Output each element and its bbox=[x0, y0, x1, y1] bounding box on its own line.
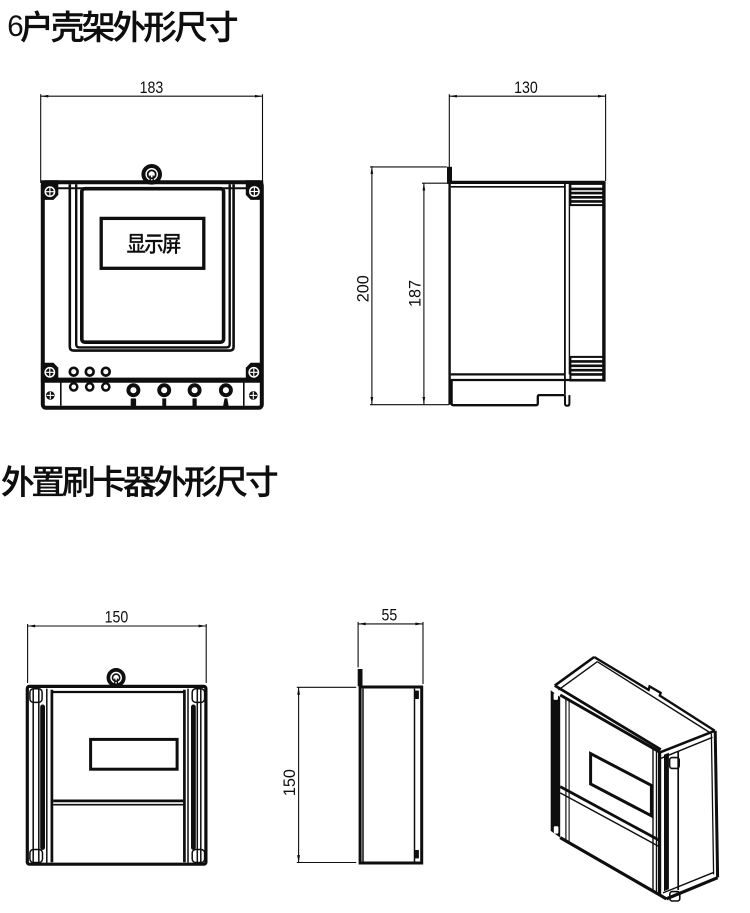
svg-text:130: 130 bbox=[514, 79, 538, 97]
svg-text:183: 183 bbox=[140, 79, 164, 97]
svg-text:55: 55 bbox=[382, 607, 398, 625]
svg-text:150: 150 bbox=[105, 609, 129, 627]
svg-text:187: 187 bbox=[407, 280, 425, 307]
svg-text:200: 200 bbox=[355, 275, 373, 302]
svg-text:6: 6 bbox=[7, 10, 23, 43]
svg-text:150: 150 bbox=[281, 769, 299, 796]
